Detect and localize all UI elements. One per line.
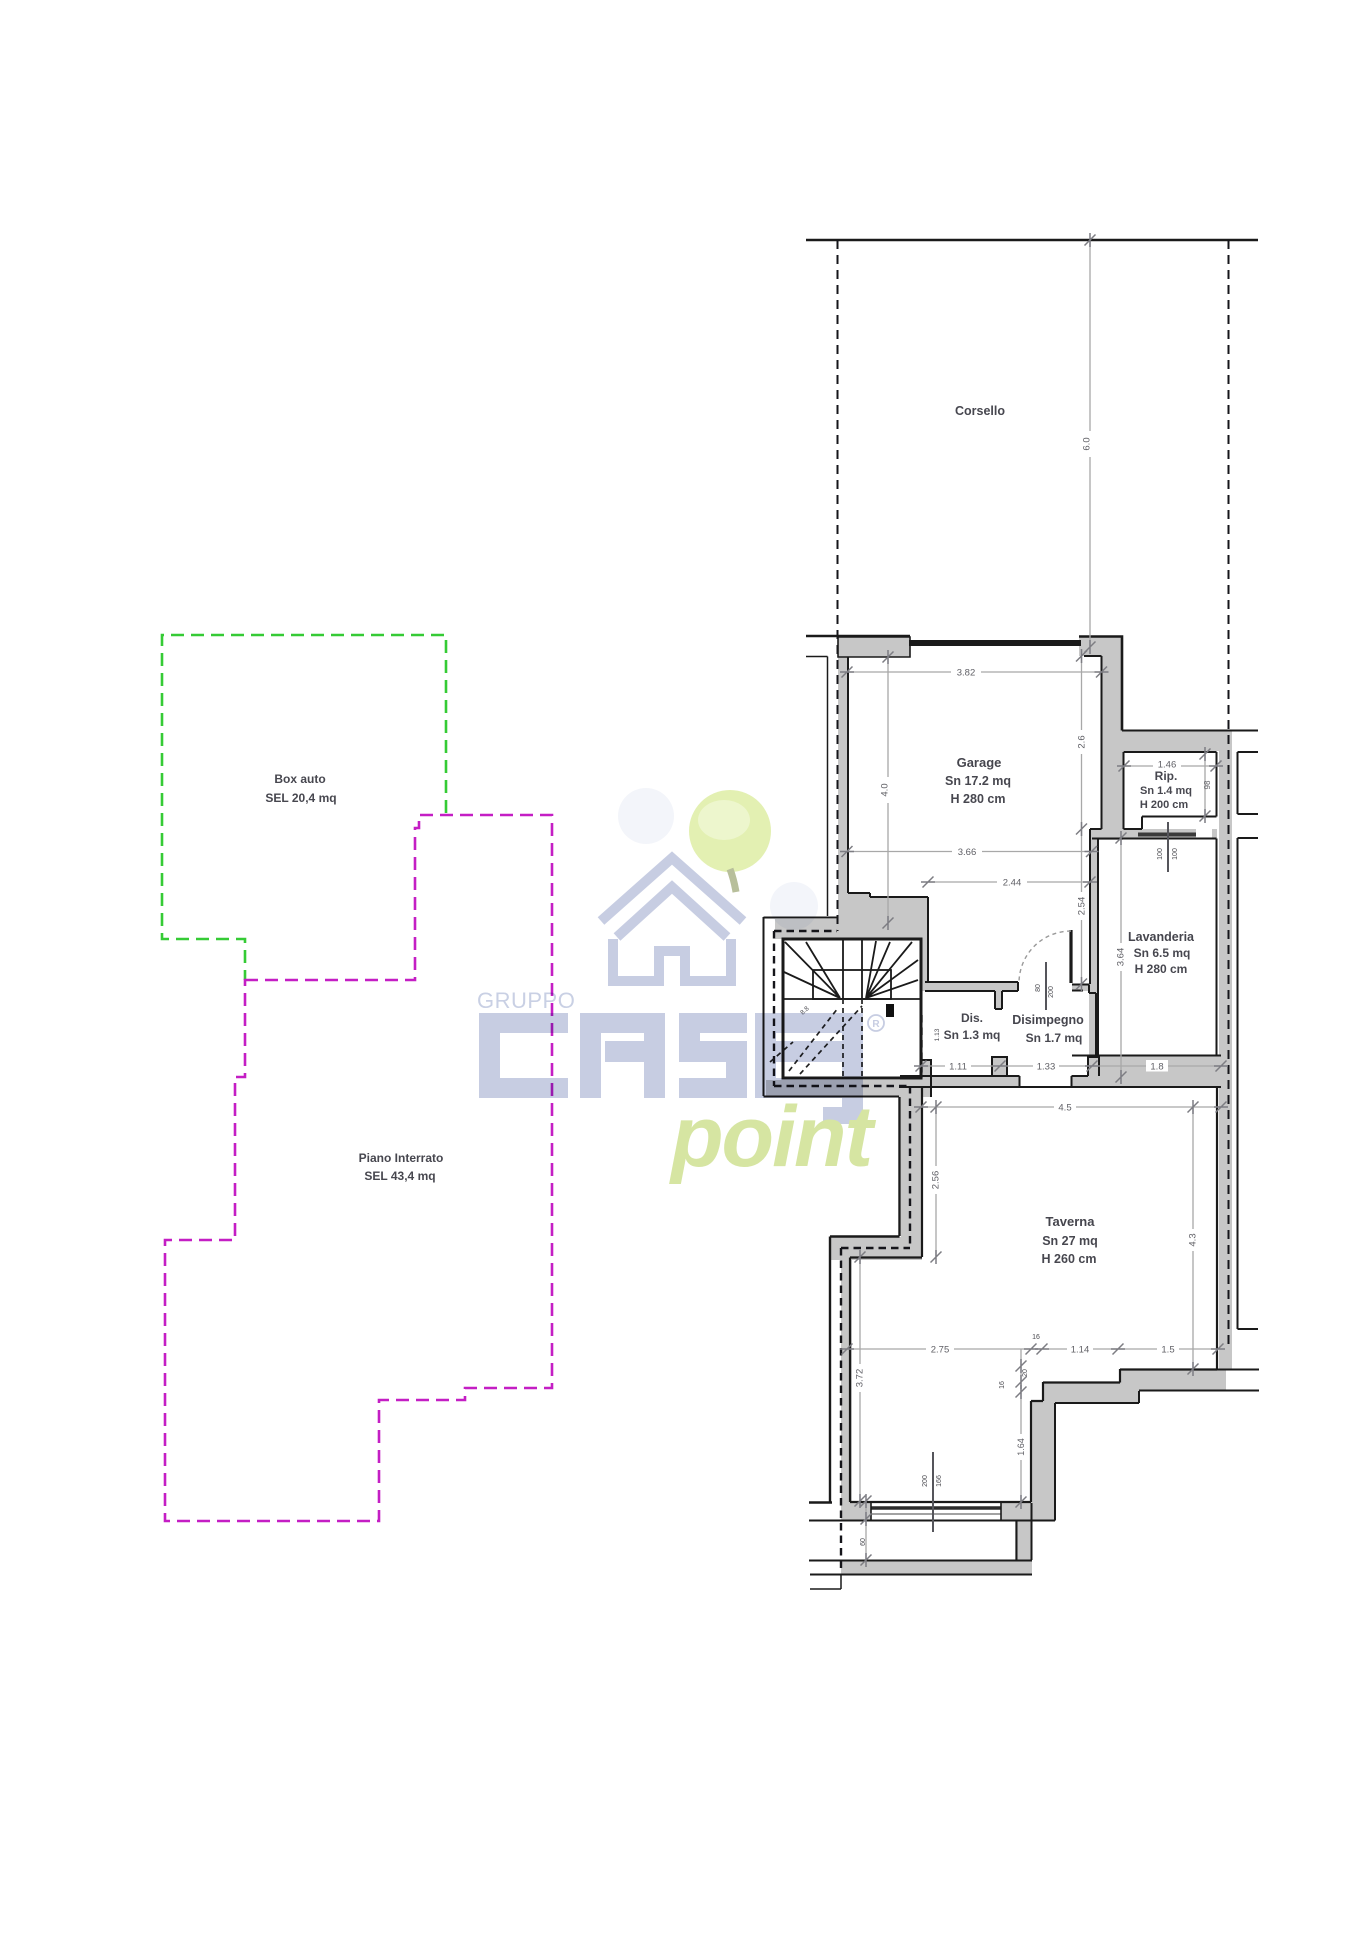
svg-text:3.72: 3.72 [855,1369,866,1388]
svg-text:2.54: 2.54 [1077,897,1088,916]
svg-text:1.64: 1.64 [1016,1438,1026,1456]
svg-text:2.56: 2.56 [931,1171,942,1190]
svg-text:Disimpegno: Disimpegno [1012,1013,1084,1027]
svg-text:1.13: 1.13 [934,1028,941,1041]
svg-text:20: 20 [1022,1369,1029,1377]
svg-text:200: 200 [1048,986,1055,998]
svg-text:98: 98 [1203,780,1212,789]
svg-text:Rip.: Rip. [1155,769,1178,783]
svg-text:1.5: 1.5 [1161,1345,1174,1356]
svg-text:4.0: 4.0 [880,783,891,796]
svg-text:3.64: 3.64 [1116,948,1127,967]
svg-text:1.33: 1.33 [1037,1062,1056,1073]
svg-text:166: 166 [936,1475,943,1487]
svg-text:Dis.: Dis. [961,1011,983,1025]
svg-text:2.44: 2.44 [1003,878,1022,889]
svg-text:Garage: Garage [957,755,1002,770]
svg-text:2.75: 2.75 [931,1345,950,1356]
svg-text:Piano Interrato: Piano Interrato [359,1151,444,1165]
svg-text:Sn 1.4 mq: Sn 1.4 mq [1140,785,1192,797]
svg-text:4.5: 4.5 [1058,1103,1071,1114]
svg-text:6.0: 6.0 [1082,437,1093,450]
svg-text:100: 100 [1157,848,1164,860]
svg-text:80: 80 [1035,984,1042,992]
svg-text:GRUPPO: GRUPPO [477,988,575,1013]
svg-text:Sn 1.7 mq: Sn 1.7 mq [1026,1031,1083,1045]
svg-text:4.3: 4.3 [1188,1233,1199,1246]
svg-text:Sn 1.3 mq: Sn 1.3 mq [944,1028,1001,1042]
svg-text:3.82: 3.82 [957,668,976,679]
svg-text:Lavanderia: Lavanderia [1128,930,1195,944]
svg-text:Taverna: Taverna [1046,1214,1096,1229]
svg-text:100: 100 [1172,848,1179,860]
svg-text:H 280 cm: H 280 cm [951,792,1006,806]
svg-text:2.6: 2.6 [1077,735,1088,748]
svg-text:R: R [872,1019,880,1030]
svg-text:Box auto: Box auto [274,772,325,786]
svg-text:H 260 cm: H 260 cm [1042,1252,1097,1266]
svg-text:1.14: 1.14 [1071,1345,1090,1356]
svg-text:16: 16 [1032,1334,1040,1341]
svg-text:H 280 cm: H 280 cm [1135,962,1188,976]
svg-text:60: 60 [860,1538,867,1546]
svg-text:200: 200 [922,1475,929,1487]
svg-text:Sn 27 mq: Sn 27 mq [1042,1234,1098,1248]
svg-text:1.8: 1.8 [1150,1062,1163,1073]
svg-text:Sn 17.2 mq: Sn 17.2 mq [945,774,1011,788]
svg-text:Sn 6.5 mq: Sn 6.5 mq [1134,946,1191,960]
svg-text:SEL 43,4 mq: SEL 43,4 mq [364,1169,435,1183]
svg-text:H 200 cm: H 200 cm [1140,799,1189,811]
svg-text:SEL 20,4 mq: SEL 20,4 mq [265,791,336,805]
svg-text:point: point [669,1089,876,1185]
svg-text:Corsello: Corsello [955,404,1005,418]
svg-text:3.66: 3.66 [958,847,977,858]
svg-text:1.11: 1.11 [949,1062,967,1073]
svg-text:16: 16 [999,1381,1006,1389]
